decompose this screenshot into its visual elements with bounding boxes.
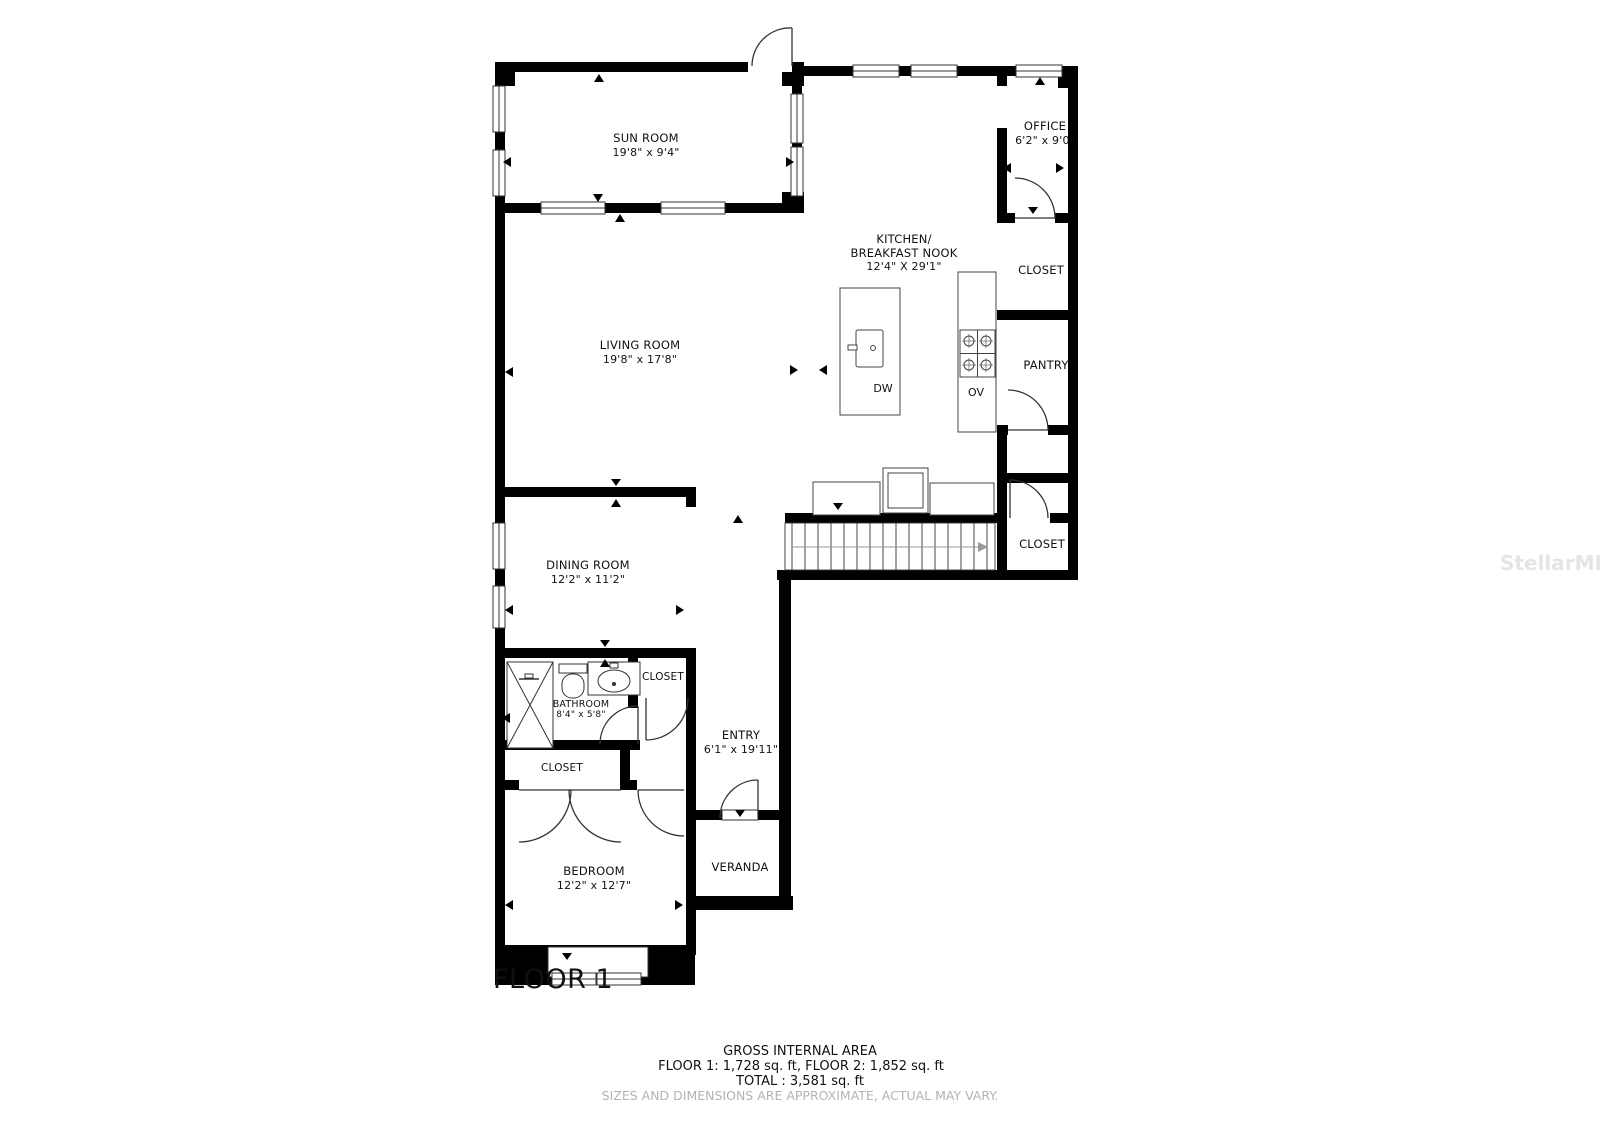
counter-left	[813, 482, 880, 515]
total-area-line: TOTAL : 3,581 sq. ft	[736, 1074, 864, 1089]
room-label-bedroom: BEDROOM 12'2" x 12'7"	[557, 865, 631, 892]
room-label-sun-room: SUN ROOM 19'8" x 9'4"	[612, 132, 679, 159]
room-label-closet-hall: CLOSET	[642, 671, 684, 685]
room-name: CLOSET	[1019, 538, 1065, 552]
room-label-office: OFFICE 6'2" x 9'0"	[1015, 120, 1075, 147]
floor-title: FLOOR 1	[493, 964, 613, 995]
room-label-closet-stairs: CLOSET	[1019, 538, 1065, 552]
counter-right	[930, 483, 994, 515]
floor-plan-canvas: SUN ROOM 19'8" x 9'4" OFFICE 6'2" x 9'0"…	[0, 0, 1600, 1132]
room-name: CLOSET	[1018, 264, 1064, 278]
floor-areas-line: FLOOR 1: 1,728 sq. ft, FLOOR 2: 1,852 sq…	[658, 1059, 944, 1074]
stove-icon	[960, 330, 995, 377]
room-name: SUN ROOM	[612, 132, 679, 146]
room-dims: 19'8" x 17'8"	[600, 353, 680, 367]
disclaimer-text: SIZES AND DIMENSIONS ARE APPROXIMATE, AC…	[602, 1088, 999, 1103]
room-label-living-room: LIVING ROOM 19'8" x 17'8"	[600, 339, 680, 366]
sink-icon	[588, 662, 640, 695]
room-name: BREAKFAST NOOK	[850, 247, 957, 261]
room-dims: 6'2" x 9'0"	[1015, 134, 1075, 148]
room-label-kitchen: KITCHEN/ BREAKFAST NOOK 12'4" X 29'1"	[850, 233, 957, 274]
toilet-icon	[559, 664, 587, 698]
room-label-veranda: VERANDA	[711, 861, 768, 875]
gross-area-title: GROSS INTERNAL AREA	[723, 1044, 877, 1059]
room-label-bathroom: BATHROOM 8'4" x 5'8"	[553, 699, 610, 721]
room-name: CLOSET	[541, 762, 583, 776]
room-dims: 8'4" x 5'8"	[553, 710, 610, 721]
room-name: DINING ROOM	[546, 559, 630, 573]
room-dims: 19'8" x 9'4"	[612, 146, 679, 160]
oven-label: OV	[968, 386, 984, 399]
room-dims: 12'2" x 12'7"	[557, 879, 631, 893]
room-name: ENTRY	[704, 729, 778, 743]
dishwasher-icon	[856, 330, 883, 367]
room-dims: 12'4" X 29'1"	[850, 260, 957, 274]
room-dims: 12'2" x 11'2"	[546, 573, 630, 587]
room-name: KITCHEN/	[850, 233, 957, 247]
room-label-closet-top: CLOSET	[1018, 264, 1064, 278]
shower-icon	[507, 662, 553, 748]
dishwasher-label: DW	[873, 382, 892, 395]
room-name: BEDROOM	[557, 865, 631, 879]
staircase	[785, 523, 995, 570]
room-name: CLOSET	[642, 671, 684, 685]
room-label-pantry: PANTRY	[1023, 359, 1068, 373]
room-label-dining-room: DINING ROOM 12'2" x 11'2"	[546, 559, 630, 586]
room-dims: 6'1" x 19'11"	[704, 743, 778, 757]
room-name: LIVING ROOM	[600, 339, 680, 353]
room-name: PANTRY	[1023, 359, 1068, 373]
room-name: OFFICE	[1015, 120, 1075, 134]
room-label-closet-bedroom: CLOSET	[541, 762, 583, 776]
room-label-entry: ENTRY 6'1" x 19'11"	[704, 729, 778, 756]
room-name: BATHROOM	[553, 699, 610, 710]
floor-plan-drawing	[0, 0, 1600, 1132]
room-name: VERANDA	[711, 861, 768, 875]
watermark: StellarMLS	[1500, 551, 1600, 575]
